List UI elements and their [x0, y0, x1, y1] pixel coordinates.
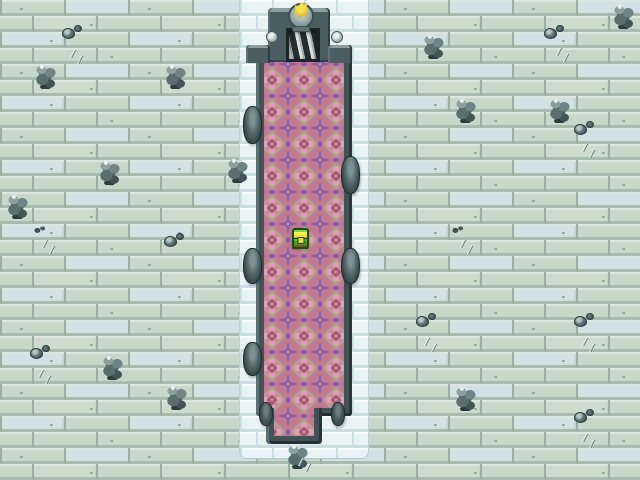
rock-icon	[574, 412, 587, 423]
rock-pile-icon	[286, 442, 309, 469]
rock-pile-icon	[548, 96, 571, 123]
rock-icon	[574, 124, 587, 135]
floor-crack-icon	[580, 144, 598, 158]
rock-pile-icon	[6, 192, 29, 219]
rock-icon	[574, 316, 587, 327]
rock-pile-icon	[612, 2, 635, 29]
rock-pile-icon	[34, 62, 57, 89]
rock-pile-icon	[98, 158, 121, 185]
pebbles-icon	[34, 226, 46, 234]
floor-crack-icon	[40, 240, 58, 254]
floor-crack-icon	[422, 338, 440, 352]
floor-crack-icon	[554, 48, 572, 62]
rock-pile-icon	[454, 384, 477, 411]
floor-crack-icon	[36, 370, 54, 384]
deco-layer	[0, 0, 640, 480]
floor-crack-icon	[458, 240, 476, 254]
rock-pile-icon	[226, 156, 249, 183]
game-viewport	[0, 0, 640, 480]
rock-pile-icon	[422, 32, 445, 59]
rock-pile-icon	[165, 383, 188, 410]
floor-crack-icon	[580, 434, 598, 448]
floor-crack-icon	[580, 338, 598, 352]
rock-icon	[164, 236, 177, 247]
rock-pile-icon	[164, 62, 187, 89]
floor-crack-icon	[68, 50, 86, 64]
rock-icon	[416, 316, 429, 327]
floor-crack-icon	[296, 458, 314, 472]
rock-icon	[544, 28, 557, 39]
rock-icon	[30, 348, 43, 359]
rock-pile-icon	[101, 353, 124, 380]
rock-pile-icon	[454, 96, 477, 123]
pebbles-icon	[452, 226, 464, 234]
rock-icon	[62, 28, 75, 39]
